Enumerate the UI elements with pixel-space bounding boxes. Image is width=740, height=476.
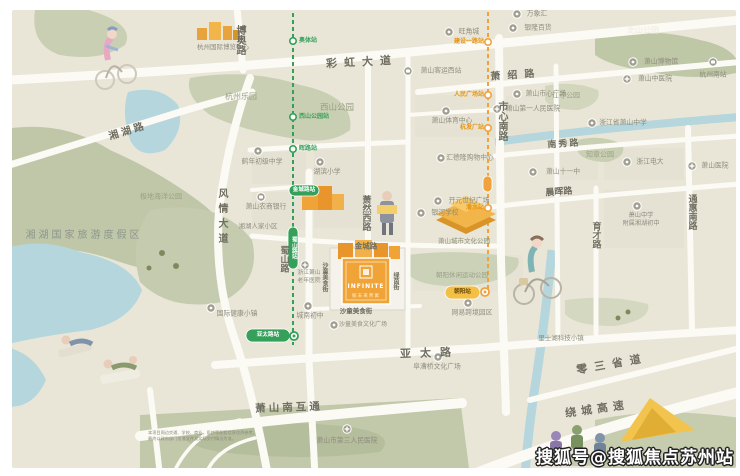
metro-station [485, 92, 491, 98]
metro-station [290, 38, 296, 44]
map-canvas [0, 0, 740, 476]
metro-station-badge [445, 286, 480, 299]
project-block [330, 240, 405, 310]
metro-station [485, 125, 491, 131]
metro-station [485, 205, 491, 211]
metro-station [485, 39, 491, 45]
metro-station [290, 146, 296, 152]
disclaimer-line2: 最终以政府部门批准文件及实际交付情况为准。 [148, 436, 348, 442]
disclaimer: 本项目周边交通、学校、商业、医疗等配套信息仅供参考， 最终以政府部门批准文件及实… [148, 430, 348, 443]
metro-station-badge [483, 176, 492, 192]
map-screenshot: { "watermark": "搜狐号@搜狐焦点苏州站", "project":… [0, 0, 740, 476]
project-logo-name-cn: 赋未来青寓 [342, 293, 390, 299]
metro-station-badge [289, 185, 319, 196]
metro-station [290, 114, 296, 120]
project-logo-name-en: INFINITE [342, 283, 390, 290]
metro-station-badge [288, 227, 298, 269]
watermark: 搜狐号@搜狐焦点苏州站 [536, 443, 734, 468]
metro-station-badge [246, 329, 290, 342]
